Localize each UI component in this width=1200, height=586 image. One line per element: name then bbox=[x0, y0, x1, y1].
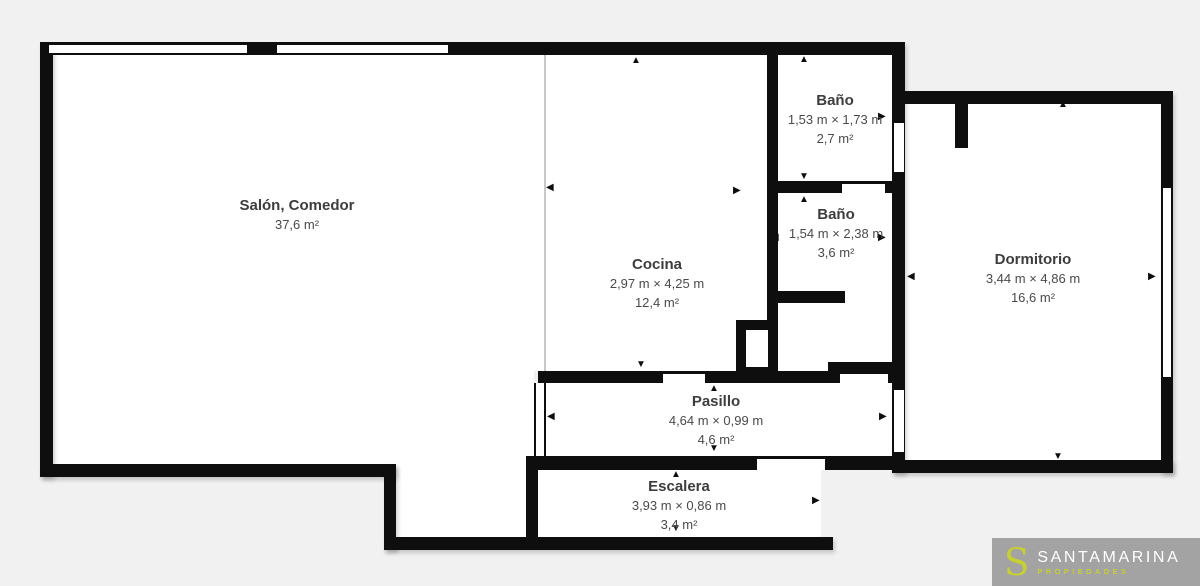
room-area: 37,6 m² bbox=[239, 215, 354, 234]
room-label-bano1: Baño 1,53 m × 1,73 m 2,7 m² bbox=[788, 91, 882, 148]
wall-bano2-bottom bbox=[828, 362, 892, 374]
door-cocina-pasillo bbox=[663, 374, 705, 383]
room-name: Baño bbox=[789, 205, 883, 224]
door-bano2-pasillo bbox=[840, 374, 888, 383]
wall-left-outer bbox=[40, 42, 53, 477]
wall-bottom-lower bbox=[384, 537, 833, 550]
logo-initial-icon: S bbox=[1004, 544, 1029, 581]
room-name: Baño bbox=[788, 91, 882, 110]
room-dims: 2,97 m × 4,25 m bbox=[610, 274, 704, 293]
wall-dormitorio-top bbox=[892, 91, 1173, 104]
room-name: Salón, Comedor bbox=[239, 196, 354, 215]
room-area: 12,4 m² bbox=[610, 293, 704, 312]
room-dims: 3,44 m × 4,86 m bbox=[986, 269, 1080, 288]
room-name: Dormitorio bbox=[986, 250, 1080, 269]
wall-dormitorio-stub bbox=[955, 104, 968, 148]
room-dims: 1,54 m × 2,38 m bbox=[789, 224, 883, 243]
window-top-left bbox=[49, 45, 247, 53]
arrow-right-icon: ▶ bbox=[1148, 272, 1156, 282]
arrow-left-icon: ◀ bbox=[547, 412, 555, 422]
room-area: 4,6 m² bbox=[669, 430, 763, 449]
wall-pasillo-bottom-band bbox=[526, 456, 905, 470]
arrow-down-icon: ▼ bbox=[799, 172, 809, 182]
shaft-inner bbox=[746, 330, 768, 367]
arrow-right-icon: ▶ bbox=[812, 496, 820, 506]
room-dims: 4,64 m × 0,99 m bbox=[669, 411, 763, 430]
floor-plan: ◀ ▲ ▶ ▼ ▲ ◀ ▶ ▼ ▲ ◀ ▶ ▲ ▼ ◀ ▶ ▲ ▼ ◀ ▶ ▲ … bbox=[0, 0, 1200, 586]
room-name: Pasillo bbox=[669, 392, 763, 411]
room-area: 3,4 m² bbox=[632, 515, 726, 534]
arrow-down-icon: ▼ bbox=[636, 360, 646, 370]
arrow-left-icon: ◀ bbox=[546, 183, 554, 193]
room-label-cocina: Cocina 2,97 m × 4,25 m 12,4 m² bbox=[610, 255, 704, 312]
door-pasillo-escalera bbox=[757, 459, 825, 470]
room-label-bano2: Baño 1,54 m × 2,38 m 3,6 m² bbox=[789, 205, 883, 262]
arrow-up-icon: ▲ bbox=[1058, 100, 1068, 110]
room-fill-salon-lower bbox=[52, 371, 534, 465]
arrow-left-icon: ◀ bbox=[529, 496, 537, 506]
arrow-up-icon: ▲ bbox=[799, 195, 809, 205]
arrow-right-icon: ▶ bbox=[879, 412, 887, 422]
arrow-left-icon: ◀ bbox=[771, 233, 779, 243]
arrow-up-icon: ▲ bbox=[631, 56, 641, 66]
room-name: Cocina bbox=[610, 255, 704, 274]
room-fill-landing bbox=[396, 465, 527, 537]
logo-tagline-text: PROPIEDADES bbox=[1037, 567, 1180, 576]
room-area: 2,7 m² bbox=[788, 129, 882, 148]
room-label-dormitorio: Dormitorio 3,44 m × 4,86 m 16,6 m² bbox=[986, 250, 1080, 307]
door-pasillo-dormitorio bbox=[894, 390, 904, 452]
door-banos-divider bbox=[842, 184, 885, 193]
window-dormitorio-right bbox=[1163, 188, 1171, 377]
salon-cocina-divider-line bbox=[544, 55, 546, 371]
wall-bano2-stub bbox=[775, 291, 845, 303]
room-label-salon: Salón, Comedor 37,6 m² bbox=[239, 196, 354, 234]
door-bano1-dormitorio bbox=[894, 123, 904, 172]
logo-brand-text: SANTAMARINA bbox=[1037, 549, 1180, 567]
room-area: 3,6 m² bbox=[789, 243, 883, 262]
room-label-escalera: Escalera 3,93 m × 0,86 m 3,4 m² bbox=[632, 477, 726, 534]
room-name: Escalera bbox=[632, 477, 726, 496]
wall-dormitorio-bottom bbox=[892, 460, 1173, 473]
arrow-up-icon: ▲ bbox=[799, 55, 809, 65]
room-dims: 3,93 m × 0,86 m bbox=[632, 496, 726, 515]
arrow-left-icon: ◀ bbox=[907, 272, 915, 282]
arrow-left-icon: ◀ bbox=[770, 112, 778, 122]
window-top-right bbox=[277, 45, 448, 53]
room-label-pasillo: Pasillo 4,64 m × 0,99 m 4,6 m² bbox=[669, 392, 763, 449]
arrow-right-icon: ▶ bbox=[733, 186, 741, 196]
room-dims: 1,53 m × 1,73 m bbox=[788, 110, 882, 129]
agency-logo: S SANTAMARINA PROPIEDADES bbox=[992, 538, 1200, 586]
door-salon-pasillo bbox=[534, 383, 546, 456]
arrow-down-icon: ▼ bbox=[1053, 452, 1063, 462]
wall-salon-bottom bbox=[40, 464, 396, 477]
room-area: 16,6 m² bbox=[986, 288, 1080, 307]
